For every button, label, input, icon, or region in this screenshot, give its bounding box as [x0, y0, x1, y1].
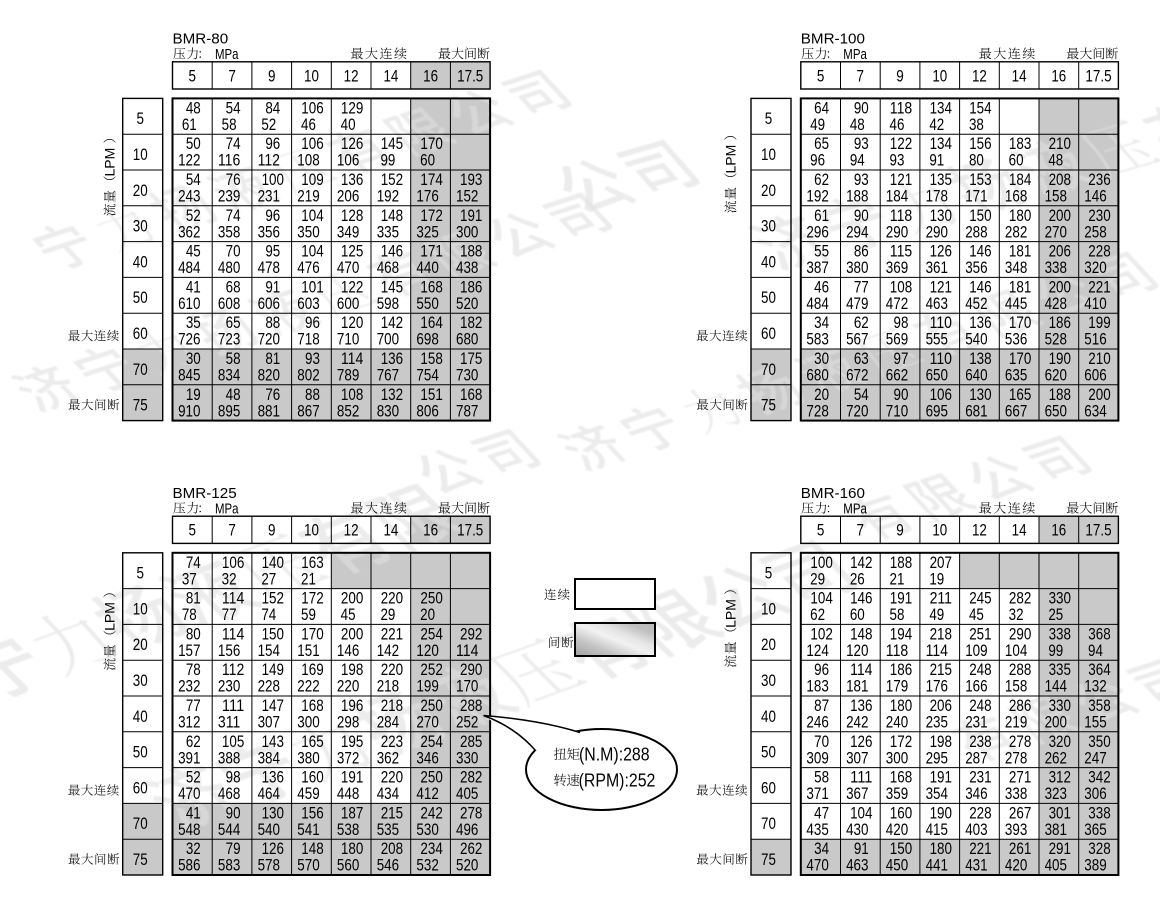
svg-text:291: 291: [1049, 840, 1071, 858]
svg-text:54: 54: [226, 99, 241, 117]
svg-text:389: 389: [1084, 857, 1106, 875]
svg-text:172: 172: [301, 590, 323, 608]
svg-text:650: 650: [1045, 402, 1067, 420]
svg-text:111: 111: [222, 697, 244, 715]
svg-text:698: 698: [416, 331, 438, 349]
svg-text:93: 93: [890, 152, 905, 170]
svg-text:208: 208: [1049, 171, 1071, 189]
svg-text:17.5: 17.5: [1085, 522, 1111, 540]
svg-text:98: 98: [226, 769, 241, 787]
svg-text:288: 288: [460, 697, 482, 715]
svg-text:46: 46: [890, 116, 905, 134]
svg-text:250: 250: [420, 697, 442, 715]
svg-text:146: 146: [1084, 188, 1106, 206]
svg-text:109: 109: [965, 642, 987, 660]
svg-text:40: 40: [133, 708, 148, 726]
svg-text:114: 114: [341, 350, 363, 368]
svg-text:124: 124: [806, 642, 828, 660]
svg-text:540: 540: [965, 331, 987, 349]
svg-text:101: 101: [301, 278, 323, 296]
svg-text:142: 142: [381, 314, 403, 332]
svg-text:346: 346: [965, 785, 987, 803]
svg-text:186: 186: [460, 278, 482, 296]
svg-text:40: 40: [133, 253, 148, 271]
svg-text:108: 108: [341, 386, 363, 404]
svg-text:364: 364: [1088, 661, 1110, 679]
svg-text:154: 154: [969, 99, 991, 117]
svg-text:74: 74: [226, 135, 241, 153]
svg-text:79: 79: [226, 840, 241, 858]
svg-text:151: 151: [420, 386, 442, 404]
svg-text:420: 420: [1005, 857, 1027, 875]
svg-text:130: 130: [930, 207, 952, 225]
svg-text:183: 183: [806, 678, 828, 696]
svg-text:16: 16: [423, 67, 438, 85]
svg-text:10: 10: [133, 146, 148, 164]
svg-text:464: 464: [258, 785, 280, 803]
svg-text:96: 96: [265, 135, 280, 153]
svg-text:49: 49: [929, 606, 944, 624]
svg-text:10: 10: [133, 600, 148, 618]
svg-text:802: 802: [297, 367, 319, 385]
svg-text:176: 176: [416, 188, 438, 206]
svg-text:365: 365: [1084, 821, 1106, 839]
svg-text:215: 215: [930, 661, 952, 679]
svg-text:163: 163: [301, 554, 323, 572]
svg-text:10: 10: [304, 522, 319, 540]
svg-text:46: 46: [301, 116, 316, 134]
svg-text:96: 96: [814, 661, 829, 679]
svg-text:30: 30: [761, 218, 776, 236]
svg-text:361: 361: [926, 259, 948, 277]
svg-text:250: 250: [420, 769, 442, 787]
svg-text:199: 199: [416, 678, 438, 696]
svg-text:180: 180: [341, 840, 363, 858]
svg-text:50: 50: [761, 744, 776, 762]
svg-text:62: 62: [186, 733, 201, 751]
svg-text:206: 206: [337, 188, 359, 206]
svg-text:789: 789: [337, 367, 359, 385]
svg-text:196: 196: [341, 697, 363, 715]
svg-text:372: 372: [337, 749, 359, 767]
svg-text:296: 296: [806, 223, 828, 241]
svg-text:104: 104: [301, 207, 323, 225]
svg-text:134: 134: [930, 99, 952, 117]
svg-text:236: 236: [1088, 171, 1110, 189]
svg-text:767: 767: [377, 367, 399, 385]
svg-text:95: 95: [265, 243, 280, 261]
svg-text:438: 438: [456, 259, 478, 277]
svg-text:9: 9: [896, 67, 904, 85]
svg-text:60: 60: [420, 152, 435, 170]
svg-text:172: 172: [890, 733, 912, 751]
svg-text:232: 232: [178, 678, 200, 696]
svg-text:218: 218: [930, 625, 952, 643]
svg-text:70: 70: [814, 733, 829, 751]
svg-text:12: 12: [344, 67, 359, 85]
svg-text:238: 238: [969, 733, 991, 751]
svg-text:867: 867: [297, 402, 319, 420]
svg-text:21: 21: [890, 570, 905, 588]
svg-text:207: 207: [930, 554, 952, 572]
svg-text:728: 728: [806, 402, 828, 420]
svg-text:240: 240: [886, 714, 908, 732]
svg-text:19: 19: [929, 570, 944, 588]
svg-text:290: 290: [886, 223, 908, 241]
svg-text:239: 239: [218, 188, 240, 206]
svg-text:820: 820: [258, 367, 280, 385]
svg-text:541: 541: [297, 821, 319, 839]
svg-text:152: 152: [381, 171, 403, 189]
svg-text:78: 78: [182, 606, 197, 624]
svg-text:160: 160: [301, 769, 323, 787]
svg-text:282: 282: [460, 769, 482, 787]
svg-text:142: 142: [850, 554, 872, 572]
svg-text:MPa: MPa: [843, 500, 867, 517]
svg-text:58: 58: [222, 116, 237, 134]
svg-text:448: 448: [337, 785, 359, 803]
svg-text:215: 215: [381, 804, 403, 822]
svg-text:46: 46: [814, 278, 829, 296]
svg-text:120: 120: [846, 642, 868, 660]
svg-text:55: 55: [814, 243, 829, 261]
svg-text:300: 300: [297, 714, 319, 732]
svg-text:852: 852: [337, 402, 359, 420]
svg-text:484: 484: [806, 295, 828, 313]
svg-text:723: 723: [218, 331, 240, 349]
svg-text:122: 122: [341, 278, 363, 296]
svg-text:228: 228: [1088, 243, 1110, 261]
svg-text:136: 136: [381, 350, 403, 368]
svg-text:110: 110: [930, 350, 952, 368]
svg-text:125: 125: [341, 243, 363, 261]
svg-text:330: 330: [1049, 697, 1071, 715]
svg-text:200: 200: [1045, 714, 1067, 732]
svg-text:16: 16: [1051, 67, 1066, 85]
svg-text:50: 50: [761, 289, 776, 307]
svg-text:610: 610: [178, 295, 200, 313]
svg-text:75: 75: [133, 397, 148, 415]
svg-text:150: 150: [890, 840, 912, 858]
svg-text:278: 278: [1009, 733, 1031, 751]
svg-text:40: 40: [761, 708, 776, 726]
svg-text:544: 544: [218, 821, 240, 839]
svg-text:338: 338: [1045, 259, 1067, 277]
svg-text:45: 45: [186, 243, 201, 261]
svg-text:312: 312: [178, 714, 200, 732]
svg-text:695: 695: [926, 402, 948, 420]
svg-text:21: 21: [301, 570, 316, 588]
svg-text:362: 362: [178, 223, 200, 241]
svg-text:96: 96: [305, 314, 320, 332]
svg-text:106: 106: [222, 554, 244, 572]
svg-text:287: 287: [965, 749, 987, 767]
svg-text:151: 151: [297, 642, 319, 660]
svg-text:834: 834: [218, 367, 240, 385]
svg-text:104: 104: [850, 804, 872, 822]
svg-text:96: 96: [810, 152, 825, 170]
svg-text:99: 99: [1048, 642, 1063, 660]
svg-text:144: 144: [1045, 678, 1067, 696]
svg-text:5: 5: [136, 565, 144, 583]
svg-text:335: 335: [1049, 661, 1071, 679]
svg-text:295: 295: [926, 749, 948, 767]
svg-text:47: 47: [814, 804, 829, 822]
svg-text:262: 262: [460, 840, 482, 858]
svg-text:104: 104: [810, 590, 832, 608]
svg-text:530: 530: [416, 821, 438, 839]
svg-text:19: 19: [186, 386, 201, 404]
svg-text:88: 88: [265, 314, 280, 332]
svg-text:178: 178: [926, 188, 948, 206]
svg-text:148: 148: [850, 625, 872, 643]
svg-text:550: 550: [416, 295, 438, 313]
svg-text:75: 75: [761, 397, 776, 415]
svg-text:146: 146: [381, 243, 403, 261]
svg-text:114: 114: [222, 590, 244, 608]
svg-text:393: 393: [1005, 821, 1027, 839]
svg-text:126: 126: [262, 840, 284, 858]
svg-text:169: 169: [301, 661, 323, 679]
svg-text:583: 583: [218, 857, 240, 875]
svg-text:251: 251: [969, 625, 991, 643]
svg-text:463: 463: [926, 295, 948, 313]
svg-text:254: 254: [420, 625, 442, 643]
svg-text:112: 112: [258, 152, 280, 170]
svg-text:14: 14: [383, 67, 398, 85]
svg-text:221: 221: [381, 625, 403, 643]
svg-text:93: 93: [305, 350, 320, 368]
svg-text:LPM: LPM: [722, 599, 738, 628]
svg-text:94: 94: [850, 152, 865, 170]
svg-text:191: 191: [460, 207, 482, 225]
svg-text:476: 476: [297, 259, 319, 277]
svg-text:81: 81: [186, 590, 201, 608]
svg-text:338: 338: [1088, 804, 1110, 822]
svg-text:532: 532: [416, 857, 438, 875]
svg-text:294: 294: [846, 223, 868, 241]
svg-text:335: 335: [377, 223, 399, 241]
svg-text:342: 342: [1088, 769, 1110, 787]
svg-text:40: 40: [341, 116, 356, 134]
svg-text:598: 598: [377, 295, 399, 313]
svg-text:98: 98: [894, 314, 909, 332]
svg-text:267: 267: [1009, 804, 1031, 822]
svg-text:284: 284: [377, 714, 399, 732]
svg-text:77: 77: [222, 606, 237, 624]
svg-text:115: 115: [890, 243, 912, 261]
svg-text:148: 148: [381, 207, 403, 225]
svg-text:20: 20: [761, 182, 776, 200]
svg-text:620: 620: [1045, 367, 1067, 385]
svg-text:234: 234: [420, 840, 442, 858]
svg-text:200: 200: [1049, 207, 1071, 225]
svg-text:662: 662: [886, 367, 908, 385]
svg-text:480: 480: [218, 259, 240, 277]
svg-text:29: 29: [810, 570, 825, 588]
svg-text:222: 222: [297, 678, 319, 696]
svg-text:76: 76: [226, 171, 241, 189]
svg-text:38: 38: [969, 116, 984, 134]
svg-text:174: 174: [420, 171, 442, 189]
svg-text:346: 346: [416, 749, 438, 767]
svg-text:254: 254: [420, 733, 442, 751]
svg-text:262: 262: [1045, 749, 1067, 767]
svg-text:LPM: LPM: [722, 145, 738, 174]
svg-text:186: 186: [890, 661, 912, 679]
svg-text:157: 157: [178, 642, 200, 660]
svg-text:41: 41: [186, 278, 201, 296]
svg-text:129: 129: [341, 99, 363, 117]
svg-text:171: 171: [965, 188, 987, 206]
svg-text:472: 472: [886, 295, 908, 313]
svg-text:130: 130: [969, 386, 991, 404]
svg-text:12: 12: [972, 67, 987, 85]
svg-text:LPM: LPM: [102, 148, 118, 177]
svg-text:136: 136: [262, 769, 284, 787]
svg-text:672: 672: [846, 367, 868, 385]
svg-text:191: 191: [930, 769, 952, 787]
svg-text:350: 350: [297, 223, 319, 241]
svg-text:91: 91: [929, 152, 944, 170]
svg-text:380: 380: [846, 259, 868, 277]
svg-text:470: 470: [178, 785, 200, 803]
svg-text:603: 603: [297, 295, 319, 313]
svg-text:17.5: 17.5: [457, 67, 483, 85]
svg-text:109: 109: [301, 171, 323, 189]
svg-text:468: 468: [377, 259, 399, 277]
svg-text:206: 206: [1049, 243, 1071, 261]
svg-text:369: 369: [886, 259, 908, 277]
svg-text:220: 220: [381, 661, 403, 679]
svg-text:100: 100: [262, 171, 284, 189]
svg-text:230: 230: [218, 678, 240, 696]
svg-text:42: 42: [929, 116, 944, 134]
svg-text:245: 245: [969, 590, 991, 608]
svg-text:356: 356: [965, 259, 987, 277]
svg-text:70: 70: [761, 815, 776, 833]
svg-text:111: 111: [850, 769, 872, 787]
svg-text:190: 190: [930, 804, 952, 822]
svg-text:58: 58: [890, 606, 905, 624]
svg-text:10: 10: [932, 522, 947, 540]
svg-text:470: 470: [806, 857, 828, 875]
svg-text:58: 58: [814, 769, 829, 787]
svg-text:153: 153: [969, 171, 991, 189]
svg-text:199: 199: [1088, 314, 1110, 332]
svg-text:230: 230: [1088, 207, 1110, 225]
svg-text:710: 710: [337, 331, 359, 349]
svg-text:246: 246: [806, 714, 828, 732]
svg-text:220: 220: [381, 769, 403, 787]
svg-text:200: 200: [1049, 278, 1071, 296]
svg-text:261: 261: [1009, 840, 1031, 858]
svg-text:387: 387: [806, 259, 828, 277]
svg-text:150: 150: [262, 625, 284, 643]
svg-text:730: 730: [456, 367, 478, 385]
svg-text:165: 165: [301, 733, 323, 751]
svg-text:74: 74: [186, 554, 201, 572]
svg-text:(RPM):252: (RPM):252: [579, 770, 656, 790]
svg-text:680: 680: [456, 331, 478, 349]
svg-text:91: 91: [854, 840, 869, 858]
svg-text:172: 172: [420, 207, 442, 225]
svg-text:65: 65: [226, 314, 241, 332]
svg-text:219: 219: [1005, 714, 1027, 732]
svg-text:221: 221: [1088, 278, 1110, 296]
svg-text:61: 61: [814, 207, 829, 225]
svg-text:138: 138: [969, 350, 991, 368]
svg-text:578: 578: [258, 857, 280, 875]
svg-text:146: 146: [850, 590, 872, 608]
svg-text:50: 50: [133, 744, 148, 762]
svg-text:463: 463: [846, 857, 868, 875]
svg-text:108: 108: [890, 278, 912, 296]
svg-text:312: 312: [1049, 769, 1071, 787]
svg-text:99: 99: [380, 152, 395, 170]
svg-text:30: 30: [814, 350, 829, 368]
svg-text:114: 114: [850, 661, 872, 679]
svg-text:118: 118: [890, 99, 912, 117]
svg-text:184: 184: [1009, 171, 1031, 189]
svg-text:349: 349: [337, 223, 359, 241]
svg-text:910: 910: [178, 402, 200, 420]
svg-text:191: 191: [890, 590, 912, 608]
svg-text:63: 63: [854, 350, 869, 368]
svg-text:348: 348: [1005, 259, 1027, 277]
svg-text:182: 182: [460, 314, 482, 332]
svg-text:248: 248: [969, 661, 991, 679]
svg-text:270: 270: [416, 714, 438, 732]
svg-text:183: 183: [1009, 135, 1031, 153]
svg-text:356: 356: [258, 223, 280, 241]
svg-text:126: 126: [341, 135, 363, 153]
svg-text:441: 441: [926, 857, 948, 875]
svg-text:60: 60: [133, 325, 148, 343]
svg-text:152: 152: [456, 188, 478, 206]
svg-text:358: 358: [1088, 697, 1110, 715]
svg-text:250: 250: [420, 590, 442, 608]
svg-text:76: 76: [265, 386, 280, 404]
svg-text:32: 32: [186, 840, 201, 858]
svg-text:479: 479: [846, 295, 868, 313]
svg-text:86: 86: [854, 243, 869, 261]
svg-text:52: 52: [186, 769, 201, 787]
svg-text:362: 362: [377, 749, 399, 767]
svg-text:78: 78: [186, 661, 201, 679]
svg-text:192: 192: [806, 188, 828, 206]
svg-text:59: 59: [301, 606, 316, 624]
svg-text:405: 405: [456, 785, 478, 803]
svg-text:60: 60: [1009, 152, 1024, 170]
svg-text:198: 198: [930, 733, 952, 751]
svg-text:156: 156: [218, 642, 240, 660]
svg-text:140: 140: [262, 554, 284, 572]
svg-text:381: 381: [1045, 821, 1067, 839]
svg-text:290: 290: [460, 661, 482, 679]
svg-text:61: 61: [182, 116, 197, 134]
svg-text:358: 358: [218, 223, 240, 241]
svg-text:114: 114: [222, 625, 244, 643]
svg-text:300: 300: [886, 749, 908, 767]
svg-text:188: 188: [846, 188, 868, 206]
svg-text:35: 35: [186, 314, 201, 332]
svg-text:282: 282: [1005, 223, 1027, 241]
svg-text:132: 132: [1084, 678, 1106, 696]
svg-text:195: 195: [341, 733, 363, 751]
svg-text:180: 180: [1009, 207, 1031, 225]
svg-text:175: 175: [460, 350, 482, 368]
